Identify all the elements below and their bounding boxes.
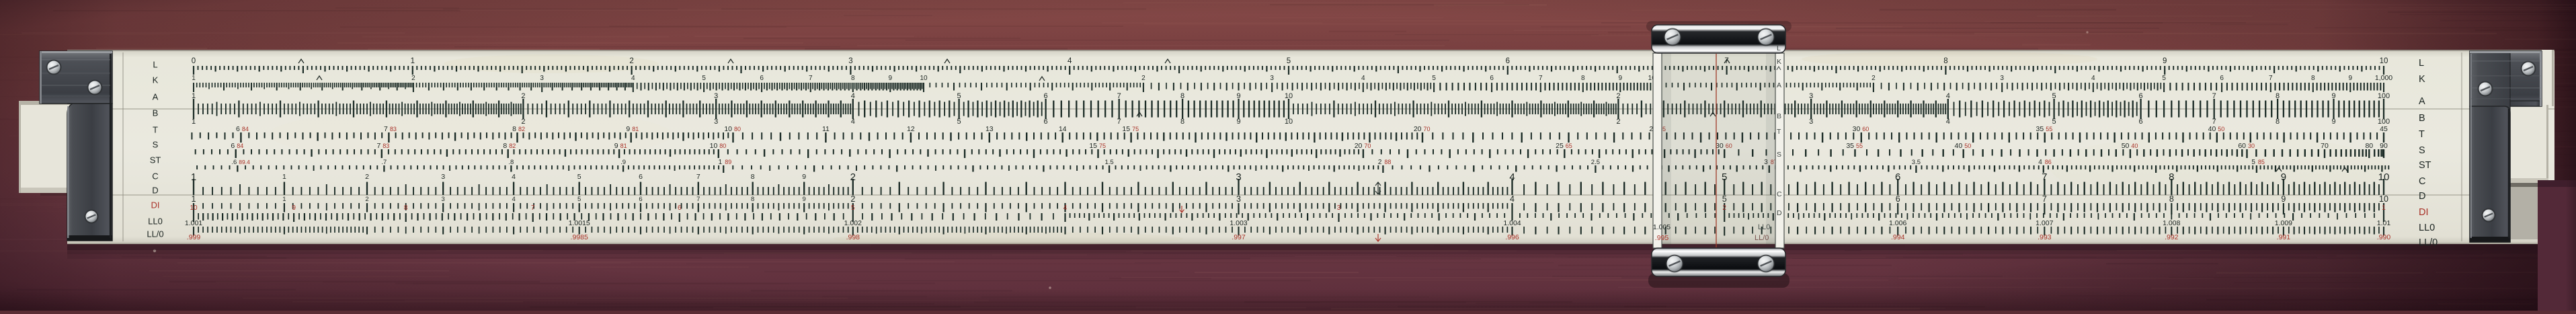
- svg-text:3: 3: [848, 57, 852, 65]
- svg-text:.991: .991: [2277, 233, 2291, 241]
- svg-text:.990: .990: [2377, 233, 2391, 241]
- svg-text:60: 60: [1862, 126, 1869, 132]
- svg-text:.992: .992: [2165, 233, 2179, 241]
- svg-text:8: 8: [851, 75, 855, 82]
- svg-text:T: T: [1777, 128, 1781, 136]
- svg-text:80: 80: [734, 126, 741, 132]
- svg-text:6: 6: [1044, 118, 1048, 126]
- svg-text:K: K: [1777, 58, 1781, 66]
- svg-text:6: 6: [1490, 75, 1494, 82]
- svg-text:6: 6: [1044, 92, 1048, 100]
- svg-text:8: 8: [503, 142, 507, 150]
- svg-text:70: 70: [2321, 142, 2329, 150]
- svg-text:8: 8: [2169, 194, 2174, 204]
- svg-text:5: 5: [577, 173, 581, 181]
- svg-text:4: 4: [851, 118, 855, 126]
- svg-text:4: 4: [1510, 194, 1515, 204]
- svg-text:4: 4: [631, 75, 635, 82]
- svg-text:ST: ST: [2419, 160, 2431, 171]
- svg-text:82: 82: [518, 126, 525, 132]
- svg-text:80: 80: [2365, 142, 2373, 150]
- svg-text:50: 50: [2218, 126, 2224, 132]
- svg-text:8: 8: [751, 173, 755, 181]
- svg-text:10: 10: [2379, 194, 2388, 204]
- svg-text:8: 8: [512, 125, 516, 133]
- svg-text:2: 2: [411, 75, 415, 82]
- svg-text:4: 4: [1068, 57, 1072, 65]
- svg-text:9: 9: [2163, 57, 2167, 65]
- svg-text:8: 8: [751, 196, 754, 203]
- svg-text:7: 7: [2269, 75, 2273, 82]
- svg-text:1.008: 1.008: [2163, 219, 2180, 227]
- svg-text:5: 5: [1287, 57, 1291, 65]
- svg-text:15: 15: [1122, 125, 1130, 133]
- svg-text:DI: DI: [151, 200, 160, 210]
- svg-text:9: 9: [1236, 92, 1240, 100]
- svg-text:4: 4: [1361, 75, 1365, 82]
- svg-text:D: D: [2419, 191, 2425, 202]
- svg-text:55: 55: [1856, 143, 1863, 149]
- svg-text:7: 7: [384, 125, 388, 133]
- svg-text:4: 4: [1063, 204, 1068, 212]
- svg-text:2.5: 2.5: [1591, 159, 1600, 166]
- svg-text:LL0: LL0: [2419, 223, 2435, 233]
- svg-text:45: 45: [2380, 125, 2388, 133]
- svg-text:8: 8: [1180, 118, 1184, 126]
- svg-text:5: 5: [851, 204, 855, 212]
- svg-text:8: 8: [2276, 118, 2280, 126]
- svg-text:3.5: 3.5: [1912, 159, 1921, 166]
- svg-text:S: S: [1777, 151, 1781, 159]
- svg-text:4: 4: [851, 92, 855, 100]
- svg-text:6: 6: [760, 75, 764, 82]
- svg-text:6: 6: [2139, 118, 2143, 126]
- svg-text:6: 6: [2139, 92, 2143, 100]
- svg-text:7: 7: [1117, 118, 1121, 126]
- svg-text:9: 9: [802, 173, 806, 181]
- svg-text:25: 25: [1556, 142, 1564, 150]
- svg-text:9: 9: [626, 125, 630, 133]
- svg-text:10: 10: [2378, 171, 2390, 183]
- svg-text:2: 2: [1616, 92, 1620, 100]
- svg-text:10: 10: [1285, 118, 1293, 126]
- svg-text:65: 65: [1566, 143, 1572, 149]
- svg-text:2: 2: [850, 171, 856, 183]
- svg-text:81: 81: [620, 143, 627, 149]
- svg-text:ST: ST: [150, 155, 161, 165]
- svg-text:7: 7: [809, 75, 813, 82]
- svg-text:LL/0: LL/0: [1755, 234, 1769, 242]
- svg-text:55: 55: [2046, 126, 2052, 132]
- svg-text:9: 9: [889, 75, 893, 82]
- svg-text:C: C: [2419, 176, 2425, 187]
- svg-text:89.4: 89.4: [239, 159, 250, 165]
- svg-text:89: 89: [725, 159, 731, 165]
- svg-text:.993: .993: [2038, 233, 2052, 241]
- svg-text:.999: .999: [187, 233, 201, 241]
- svg-text:5: 5: [1432, 75, 1436, 82]
- svg-text:8: 8: [2276, 92, 2280, 100]
- svg-text:6: 6: [1506, 57, 1510, 65]
- svg-text:3: 3: [1337, 204, 1341, 212]
- svg-text:7: 7: [2042, 171, 2047, 183]
- svg-text:8: 8: [1943, 57, 1947, 65]
- svg-text:30: 30: [1853, 125, 1861, 133]
- svg-text:100: 100: [2378, 92, 2390, 100]
- svg-text:K: K: [2419, 74, 2425, 85]
- svg-text:3: 3: [1809, 92, 1813, 100]
- svg-text:9: 9: [1619, 75, 1623, 82]
- svg-text:.997: .997: [1232, 233, 1246, 241]
- svg-text:3: 3: [442, 196, 445, 203]
- svg-text:1.009: 1.009: [2275, 219, 2292, 227]
- svg-text:5: 5: [2052, 118, 2056, 126]
- svg-text:4: 4: [512, 173, 516, 181]
- svg-text:7: 7: [376, 142, 380, 150]
- svg-text:1.002: 1.002: [844, 219, 862, 227]
- svg-text:1: 1: [719, 159, 723, 166]
- svg-text:10: 10: [920, 75, 928, 82]
- svg-text:1: 1: [192, 194, 196, 204]
- svg-text:0: 0: [192, 57, 196, 65]
- svg-text:1.0015: 1.0015: [569, 219, 590, 227]
- svg-text:.9985: .9985: [571, 233, 588, 241]
- svg-text:1: 1: [282, 173, 286, 181]
- svg-text:4: 4: [2091, 75, 2095, 82]
- svg-text:1.01: 1.01: [2377, 219, 2391, 227]
- svg-text:7: 7: [1539, 75, 1543, 82]
- svg-text:84: 84: [237, 143, 243, 149]
- svg-text:3: 3: [714, 118, 718, 126]
- svg-text:D: D: [152, 186, 158, 196]
- svg-text:9: 9: [2331, 92, 2335, 100]
- svg-text:7: 7: [2212, 92, 2216, 100]
- svg-text:1: 1: [191, 171, 196, 183]
- svg-text:75: 75: [1132, 126, 1139, 132]
- svg-text:10: 10: [724, 125, 732, 133]
- svg-text:40: 40: [1955, 142, 1963, 150]
- svg-text:50: 50: [2122, 142, 2130, 150]
- svg-text:2: 2: [521, 92, 525, 100]
- svg-text:2: 2: [1871, 75, 1876, 82]
- svg-text:88: 88: [1384, 159, 1391, 165]
- svg-text:C: C: [1777, 190, 1782, 198]
- svg-text:9: 9: [2281, 194, 2286, 204]
- svg-text:82: 82: [509, 143, 516, 149]
- svg-text:B: B: [1777, 112, 1781, 120]
- svg-text:1.004: 1.004: [1503, 219, 1521, 227]
- svg-text:1: 1: [411, 57, 415, 65]
- svg-text:14: 14: [1059, 125, 1067, 133]
- svg-text:3: 3: [1809, 118, 1813, 126]
- svg-text:85: 85: [2258, 159, 2265, 165]
- svg-text:10: 10: [190, 204, 198, 212]
- svg-text:9: 9: [2331, 118, 2335, 126]
- svg-text:83: 83: [383, 143, 389, 149]
- svg-text:LL0: LL0: [148, 217, 163, 227]
- svg-text:T: T: [153, 125, 158, 135]
- svg-text:5: 5: [957, 92, 961, 100]
- svg-text:9: 9: [2349, 75, 2353, 82]
- svg-text:B: B: [2419, 113, 2425, 124]
- svg-text:7: 7: [696, 173, 700, 181]
- svg-text:L: L: [1777, 44, 1781, 52]
- svg-text:1.007: 1.007: [2036, 219, 2053, 227]
- svg-text:5: 5: [2251, 159, 2255, 166]
- svg-text:.9: .9: [620, 159, 626, 166]
- svg-text:4: 4: [2038, 159, 2042, 166]
- svg-text:8: 8: [2311, 75, 2315, 82]
- svg-text:6: 6: [678, 204, 682, 212]
- svg-text:1.006: 1.006: [1889, 219, 1906, 227]
- svg-text:2: 2: [850, 194, 855, 204]
- svg-text:1.003: 1.003: [1230, 219, 1247, 227]
- svg-text:9: 9: [1236, 118, 1240, 126]
- svg-text:.996: .996: [1505, 233, 1519, 241]
- svg-text:10: 10: [2380, 57, 2388, 65]
- svg-text:11: 11: [822, 125, 830, 133]
- svg-text:6: 6: [231, 142, 235, 150]
- svg-text:12: 12: [907, 125, 915, 133]
- svg-text:3: 3: [2000, 75, 2004, 82]
- svg-text:A: A: [2419, 96, 2425, 107]
- svg-text:80: 80: [719, 143, 726, 149]
- svg-text:2: 2: [521, 118, 525, 126]
- svg-text:10: 10: [1285, 92, 1293, 100]
- svg-text:5: 5: [2162, 75, 2166, 82]
- svg-text:4: 4: [1509, 171, 1515, 183]
- svg-text:1: 1: [192, 118, 196, 126]
- svg-text:35: 35: [2036, 125, 2044, 133]
- svg-text:9: 9: [292, 204, 296, 212]
- svg-text:4: 4: [512, 196, 515, 203]
- svg-text:.8: .8: [508, 159, 514, 166]
- svg-text:40: 40: [2131, 143, 2138, 149]
- svg-text:8: 8: [1581, 75, 1585, 82]
- svg-text:4: 4: [1946, 118, 1950, 126]
- svg-text:.995: .995: [1655, 234, 1669, 242]
- svg-text:1.001: 1.001: [185, 219, 202, 227]
- svg-text:20: 20: [1414, 125, 1422, 133]
- svg-text:3: 3: [1236, 171, 1241, 183]
- svg-text:6: 6: [639, 173, 643, 181]
- svg-text:7: 7: [696, 196, 700, 203]
- svg-text:8: 8: [2169, 171, 2174, 183]
- svg-text:T: T: [2419, 129, 2425, 140]
- svg-text:13: 13: [985, 125, 994, 133]
- svg-text:9: 9: [803, 196, 806, 203]
- svg-text:75: 75: [1099, 143, 1106, 149]
- svg-text:40: 40: [2208, 125, 2216, 133]
- svg-text:3: 3: [1236, 194, 1241, 204]
- svg-text:A: A: [1777, 81, 1781, 89]
- svg-text:.994: .994: [1891, 233, 1905, 241]
- svg-text:1,000: 1,000: [2375, 74, 2392, 82]
- svg-text:83: 83: [390, 126, 397, 132]
- svg-text:2: 2: [1378, 159, 1382, 166]
- svg-text:6: 6: [639, 196, 642, 203]
- svg-text:6: 6: [2220, 75, 2224, 82]
- svg-text:6: 6: [1895, 171, 1900, 183]
- svg-text:DI: DI: [2419, 207, 2429, 218]
- svg-text:1: 1: [2382, 204, 2386, 212]
- svg-text:70: 70: [1364, 143, 1371, 149]
- svg-text:70: 70: [1424, 126, 1431, 132]
- svg-text:7: 7: [2042, 194, 2047, 204]
- svg-text:4: 4: [1946, 92, 1950, 100]
- svg-text:K: K: [153, 75, 159, 85]
- svg-text:5: 5: [2052, 92, 2056, 100]
- svg-text:3: 3: [441, 173, 445, 181]
- svg-text:S: S: [153, 140, 159, 150]
- svg-text:2: 2: [629, 57, 633, 65]
- svg-text:B: B: [153, 108, 159, 118]
- svg-text:35: 35: [1846, 142, 1854, 150]
- svg-text:15: 15: [1089, 142, 1097, 150]
- svg-text:9: 9: [2281, 171, 2286, 183]
- svg-text:LL/0: LL/0: [2419, 237, 2438, 248]
- svg-text:1: 1: [192, 75, 196, 82]
- svg-text:1: 1: [192, 92, 196, 100]
- svg-text:5: 5: [957, 118, 961, 126]
- svg-text:3: 3: [714, 92, 718, 100]
- svg-text:84: 84: [242, 126, 249, 132]
- svg-text:2: 2: [365, 196, 368, 203]
- svg-text:2: 2: [1616, 118, 1620, 126]
- svg-text:5: 5: [702, 75, 706, 82]
- svg-text:2: 2: [365, 173, 369, 181]
- svg-text:1.005: 1.005: [1653, 223, 1671, 231]
- svg-text:3: 3: [1270, 75, 1274, 82]
- svg-text:.7: .7: [381, 159, 387, 166]
- svg-text:A: A: [153, 92, 159, 102]
- svg-text:L: L: [153, 60, 157, 70]
- svg-text:90: 90: [2380, 142, 2388, 150]
- svg-text:5: 5: [577, 196, 581, 203]
- svg-text:3: 3: [540, 75, 544, 82]
- svg-text:9: 9: [614, 142, 618, 150]
- svg-text:.998: .998: [846, 233, 860, 241]
- svg-text:8: 8: [1180, 92, 1184, 100]
- svg-text:8: 8: [404, 204, 408, 212]
- svg-text:D: D: [1777, 209, 1782, 217]
- svg-text:81: 81: [632, 126, 639, 132]
- svg-text:60: 60: [2238, 142, 2246, 150]
- svg-text:L: L: [2419, 58, 2424, 69]
- svg-text:20: 20: [1355, 142, 1363, 150]
- svg-text:1.5: 1.5: [1104, 159, 1113, 166]
- svg-text:7: 7: [1117, 92, 1121, 100]
- svg-text:LL/0: LL/0: [147, 229, 163, 239]
- svg-text:C: C: [152, 171, 158, 182]
- svg-text:30: 30: [2248, 143, 2255, 149]
- svg-text:10: 10: [710, 142, 718, 150]
- svg-text:S: S: [2419, 145, 2425, 156]
- svg-text:.6: .6: [231, 159, 237, 166]
- svg-text:50: 50: [1964, 143, 1971, 149]
- svg-text:86: 86: [2045, 159, 2052, 165]
- svg-text:7: 7: [531, 204, 535, 212]
- svg-text:6: 6: [1896, 194, 1900, 204]
- svg-text:1: 1: [282, 196, 286, 203]
- svg-text:LL0: LL0: [1758, 223, 1770, 231]
- svg-text:6: 6: [236, 125, 240, 133]
- svg-text:2: 2: [1141, 75, 1145, 82]
